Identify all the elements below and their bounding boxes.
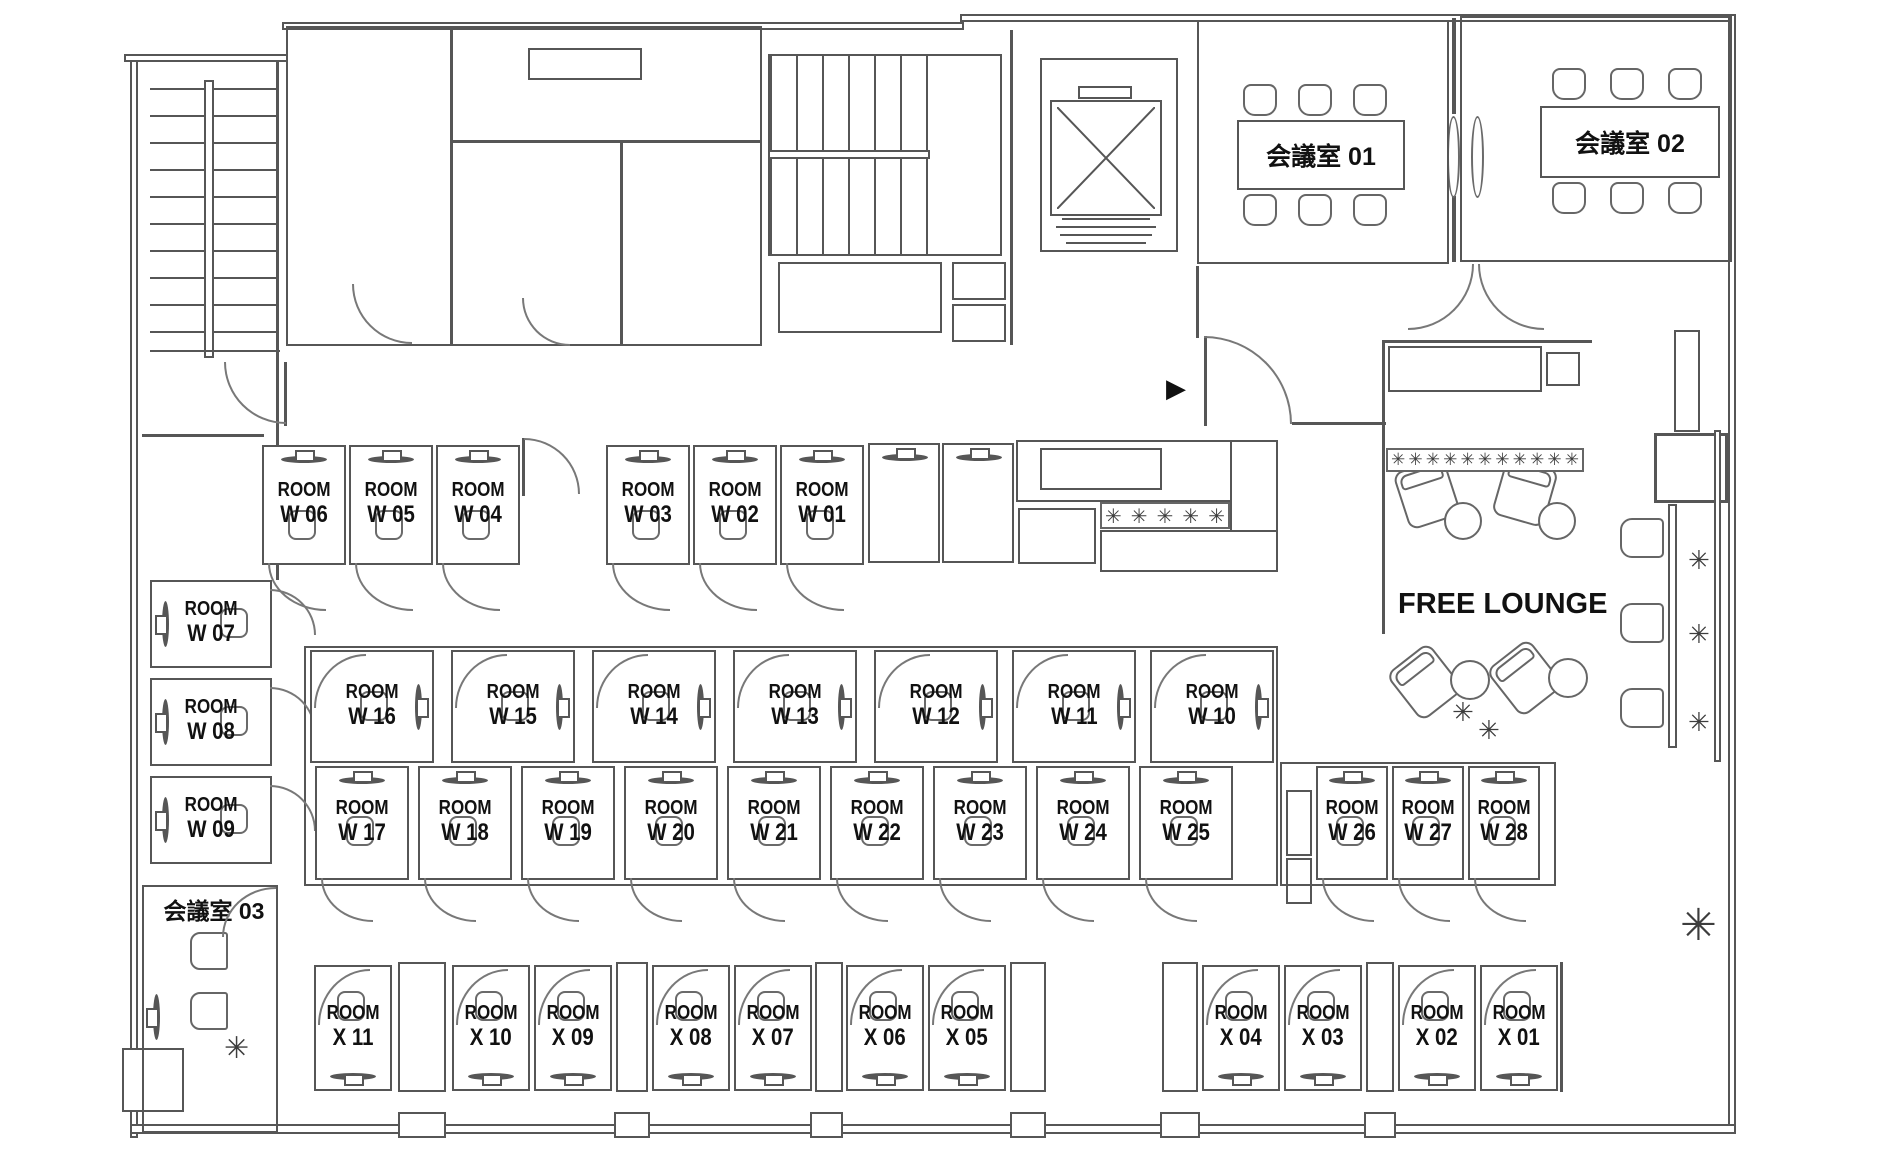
room-word: ROOM xyxy=(709,480,762,501)
door-arc-icon xyxy=(733,878,785,922)
room-w-27: ROOMW 27 xyxy=(1392,766,1464,880)
room-word: ROOM xyxy=(859,1003,912,1024)
wall xyxy=(1196,266,1199,338)
room-w-08: ROOMW 08 xyxy=(150,678,272,766)
room-w-28: ROOMW 28 xyxy=(1468,766,1540,880)
plant-icon: ✳ xyxy=(1408,452,1422,469)
plant-icon: ✳ xyxy=(1131,506,1148,526)
room-id: W 02 xyxy=(711,501,759,530)
room-word: ROOM xyxy=(439,798,492,819)
meeting-room-02-table: 会議室 02 xyxy=(1540,106,1720,178)
appliance xyxy=(1018,508,1096,564)
room-word: ROOM xyxy=(1411,1003,1464,1024)
desk-icon xyxy=(368,450,414,466)
room-word: ROOM xyxy=(185,697,238,718)
room-id: X 03 xyxy=(1302,1024,1344,1053)
room-id: W 22 xyxy=(853,819,901,848)
pillar xyxy=(810,1112,843,1138)
meeting-room-02-label: 会議室 02 xyxy=(1575,124,1685,160)
room-w-20: ROOMW 20 xyxy=(624,766,718,880)
side-table-icon xyxy=(1548,658,1588,698)
door-arc-icon xyxy=(1478,264,1544,330)
room-word: ROOM xyxy=(1402,798,1455,819)
room-word: ROOM xyxy=(185,795,238,816)
room-id: W 18 xyxy=(441,819,489,848)
desk-icon xyxy=(155,797,171,843)
desk-icon xyxy=(339,771,385,787)
room-word: ROOM xyxy=(622,480,675,501)
room-word: ROOM xyxy=(336,798,389,819)
plant-icon: ✳ xyxy=(1688,710,1710,736)
room-w-24: ROOMW 24 xyxy=(1036,766,1130,880)
plant-icon: ✳ xyxy=(1565,452,1579,469)
window-wall xyxy=(1714,430,1721,762)
room-w-10: ROOMW 10 xyxy=(1150,650,1274,763)
desk-icon xyxy=(668,1070,714,1086)
desk-icon xyxy=(1060,771,1106,787)
desk-icon xyxy=(1163,771,1209,787)
room-x-05: ROOMX 05 xyxy=(928,965,1006,1091)
side-table-icon xyxy=(1450,660,1490,700)
desk-icon xyxy=(1115,684,1131,730)
wall xyxy=(1292,422,1386,425)
door-arc-icon xyxy=(321,878,373,922)
closet xyxy=(952,262,1006,300)
room-w-21: ROOMW 21 xyxy=(727,766,821,880)
room-w-01: ROOMW 01 xyxy=(780,445,864,565)
room-id: W 20 xyxy=(647,819,695,848)
room-word: ROOM xyxy=(769,682,822,703)
room-word: ROOM xyxy=(1297,1003,1350,1024)
pillar xyxy=(614,1112,650,1138)
room-w-16: ROOMW 16 xyxy=(310,650,434,763)
room-id: W 27 xyxy=(1404,819,1452,848)
room-id: X 05 xyxy=(946,1024,988,1053)
wall xyxy=(1010,30,1013,345)
meeting-room-01-label: 会議室 01 xyxy=(1266,137,1376,173)
plant-icon: ✳ xyxy=(1391,452,1405,469)
room-word: ROOM xyxy=(1326,798,1379,819)
room-id: W 16 xyxy=(348,703,396,732)
elevator-sill xyxy=(1060,234,1152,236)
room-id: W 19 xyxy=(544,819,592,848)
door-arc-icon xyxy=(1042,878,1094,922)
desk-icon xyxy=(1481,771,1527,787)
landing xyxy=(778,262,942,333)
kitchen-counter xyxy=(1100,530,1278,572)
free-lounge-label: FREE LOUNGE xyxy=(1398,588,1602,621)
desk-icon xyxy=(944,1070,990,1086)
room-x-06: ROOMX 06 xyxy=(846,965,924,1091)
vestibule xyxy=(1366,962,1394,1092)
room-word: ROOM xyxy=(748,798,801,819)
door-arc-icon xyxy=(355,563,413,611)
room-x-09: ROOMX 09 xyxy=(534,965,612,1091)
wall xyxy=(1560,962,1563,1092)
desk-icon xyxy=(956,448,1002,464)
room-id: W 05 xyxy=(367,501,415,530)
door-arc-icon xyxy=(524,438,580,494)
room-id: X 06 xyxy=(864,1024,906,1053)
room-x-07: ROOMX 07 xyxy=(734,965,812,1091)
room-word: ROOM xyxy=(1048,682,1101,703)
room-x-04: ROOMX 04 xyxy=(1202,965,1280,1091)
desk-icon xyxy=(468,1070,514,1086)
room-word: ROOM xyxy=(185,599,238,620)
room-id: W 12 xyxy=(912,703,960,732)
room-id: W 25 xyxy=(1162,819,1210,848)
plant-icon: ✳ xyxy=(1208,506,1225,526)
room-id: W 04 xyxy=(454,501,502,530)
room-id: X 09 xyxy=(552,1024,594,1053)
desk-icon xyxy=(1405,771,1451,787)
chair-icon xyxy=(1620,688,1664,728)
vestibule xyxy=(815,962,843,1092)
door-arc-icon xyxy=(630,878,682,922)
desk-icon xyxy=(413,684,429,730)
room-word: ROOM xyxy=(796,480,849,501)
desk-icon xyxy=(455,450,501,466)
plant-icon: ✳ xyxy=(1495,452,1509,469)
desk-icon xyxy=(799,450,845,466)
pillar xyxy=(398,1112,446,1138)
desk-icon xyxy=(695,684,711,730)
room-w-12: ROOMW 12 xyxy=(874,650,998,763)
wall xyxy=(130,1124,1736,1134)
door-arc-icon xyxy=(527,878,579,922)
room-id: W 24 xyxy=(1059,819,1107,848)
plant-icon: ✳ xyxy=(1478,452,1492,469)
room-word: ROOM xyxy=(665,1003,718,1024)
room-id: X 02 xyxy=(1416,1024,1458,1053)
desk-icon xyxy=(862,1070,908,1086)
room-word: ROOM xyxy=(1478,798,1531,819)
room-w-23: ROOMW 23 xyxy=(933,766,1027,880)
room-w-11: ROOMW 11 xyxy=(1012,650,1136,763)
room-w-09: ROOMW 09 xyxy=(150,776,272,864)
room-id: W 10 xyxy=(1188,703,1236,732)
chair-icon xyxy=(1620,603,1664,643)
desk-icon xyxy=(882,448,928,464)
entrance-arrow-icon: ▶ xyxy=(1166,376,1186,402)
room-word: ROOM xyxy=(645,798,698,819)
meeting-room-01-table: 会議室 01 xyxy=(1237,120,1405,190)
room-id: W 09 xyxy=(187,816,235,845)
desk-icon xyxy=(554,684,570,730)
desk-icon xyxy=(330,1070,376,1086)
lounge-counter xyxy=(1388,346,1542,392)
room-id: W 01 xyxy=(798,501,846,530)
room-w-17: ROOMW 17 xyxy=(315,766,409,880)
room-word: ROOM xyxy=(278,480,331,501)
room-w-15: ROOMW 15 xyxy=(451,650,575,763)
elevator-sill xyxy=(1056,226,1156,228)
desk-icon xyxy=(750,1070,796,1086)
room-id: X 01 xyxy=(1498,1024,1540,1053)
plant-icon: ✳ xyxy=(1688,548,1710,574)
room-w-26: ROOMW 26 xyxy=(1316,766,1388,880)
stairs-icon xyxy=(150,88,278,350)
lounge-bar-counter xyxy=(1668,504,1677,748)
room-w-04: ROOMW 04 xyxy=(436,445,520,565)
room-id: X 07 xyxy=(752,1024,794,1053)
room-word: ROOM xyxy=(1493,1003,1546,1024)
room-word: ROOM xyxy=(365,480,418,501)
room-word: ROOM xyxy=(327,1003,380,1024)
room-id: W 13 xyxy=(771,703,819,732)
desk-icon xyxy=(281,450,327,466)
room-id: W 11 xyxy=(1051,703,1097,732)
wall xyxy=(142,434,264,437)
vestibule xyxy=(616,962,648,1092)
closet xyxy=(952,304,1006,342)
room-x-08: ROOMX 08 xyxy=(652,965,730,1091)
room-id: W 06 xyxy=(280,501,328,530)
room-word: ROOM xyxy=(941,1003,994,1024)
plant-icon: ✳ xyxy=(1105,506,1122,526)
plant-icon: ✳ xyxy=(1443,452,1457,469)
room-id: W 26 xyxy=(1328,819,1376,848)
desk-icon xyxy=(977,684,993,730)
room-x-02: ROOMX 02 xyxy=(1398,965,1476,1091)
wall xyxy=(1452,18,1456,114)
room-w-02: ROOMW 02 xyxy=(693,445,777,565)
plant-icon: ✳ xyxy=(1688,622,1710,648)
desk-icon xyxy=(146,994,162,1040)
planter-strip: ✳ ✳ ✳ ✳ ✳ xyxy=(1100,502,1230,529)
desk-icon xyxy=(957,771,1003,787)
lounge-counter xyxy=(1546,352,1580,386)
sink xyxy=(1040,448,1162,490)
room-id: W 15 xyxy=(489,703,537,732)
planter-strip: ✳ ✳ ✳ ✳ ✳ ✳ ✳ ✳ ✳ ✳ ✳ xyxy=(1386,448,1584,472)
wall xyxy=(130,54,138,1138)
stairwell-outline xyxy=(768,54,1002,256)
room-w-03: ROOMW 03 xyxy=(606,445,690,565)
room-x-10: ROOMX 10 xyxy=(452,965,530,1091)
door-arc-icon xyxy=(1322,878,1374,922)
desk-icon xyxy=(545,771,591,787)
room-word: ROOM xyxy=(1057,798,1110,819)
room-w-14: ROOMW 14 xyxy=(592,650,716,763)
room-word: ROOM xyxy=(628,682,681,703)
side-table-icon xyxy=(1538,502,1576,540)
floor-plan-canvas: 会議室 01 会議室 02 ▶ ✳ ✳ ✳ ✳ ✳ xyxy=(0,0,1890,1159)
room-word: ROOM xyxy=(747,1003,800,1024)
room-id: W 08 xyxy=(187,718,235,747)
wall xyxy=(150,350,280,352)
room-x-11: ROOMX 11 xyxy=(314,965,392,1091)
room-id: W 21 xyxy=(750,819,798,848)
wall xyxy=(1382,340,1592,343)
wall xyxy=(1452,196,1456,262)
room-id: W 17 xyxy=(338,819,386,848)
room-w-06: ROOMW 06 xyxy=(262,445,346,565)
door-arc-icon xyxy=(1474,878,1526,922)
room-id: W 23 xyxy=(956,819,1004,848)
room-word: ROOM xyxy=(1186,682,1239,703)
room-word: ROOM xyxy=(465,1003,518,1024)
room-word: ROOM xyxy=(954,798,1007,819)
room-word: ROOM xyxy=(1160,798,1213,819)
pillar xyxy=(1010,1112,1046,1138)
plant-icon: ✳ xyxy=(1530,452,1544,469)
room-word: ROOM xyxy=(487,682,540,703)
desk-icon xyxy=(751,771,797,787)
plant-icon: ✳ xyxy=(1547,452,1561,469)
room-word: ROOM xyxy=(346,682,399,703)
desk-icon xyxy=(1329,771,1375,787)
pillar xyxy=(1364,1112,1396,1138)
room-id: X 08 xyxy=(670,1024,712,1053)
plant-icon: ✳ xyxy=(1680,904,1717,948)
desk-icon xyxy=(442,771,488,787)
door-arc-icon xyxy=(939,878,991,922)
room-id: W 07 xyxy=(187,620,235,649)
chair-icon xyxy=(1620,518,1664,558)
room-id: X 04 xyxy=(1220,1024,1262,1053)
desk-icon xyxy=(550,1070,596,1086)
wall xyxy=(124,54,288,62)
room-id: W 03 xyxy=(624,501,672,530)
plant-icon: ✳ xyxy=(1157,506,1174,526)
room-id: W 14 xyxy=(630,703,678,732)
elevator-sill xyxy=(1062,218,1150,220)
room-id: X 11 xyxy=(333,1024,374,1053)
door-arc-icon xyxy=(442,563,500,611)
room-w-18: ROOMW 18 xyxy=(418,766,512,880)
room-x-03: ROOMX 03 xyxy=(1284,965,1362,1091)
desk-icon xyxy=(1300,1070,1346,1086)
door-arc-icon xyxy=(836,878,888,922)
room-w-13: ROOMW 13 xyxy=(733,650,857,763)
desk-icon xyxy=(1253,684,1269,730)
entrance-door-arc-icon xyxy=(1204,336,1292,424)
door-arc-icon xyxy=(1408,264,1474,330)
desk-icon xyxy=(854,771,900,787)
elevator-sill xyxy=(1066,242,1146,244)
room-w-07: ROOMW 07 xyxy=(150,580,272,668)
plant-icon: ✳ xyxy=(1182,506,1199,526)
desk-icon xyxy=(625,450,671,466)
door-arc-icon xyxy=(1398,878,1450,922)
door-arc-icon xyxy=(786,563,844,611)
plant-icon: ✳ xyxy=(1478,718,1500,744)
desk-icon xyxy=(1218,1070,1264,1086)
vestibule xyxy=(1162,962,1198,1092)
room-word: ROOM xyxy=(1215,1003,1268,1024)
desk-icon xyxy=(1496,1070,1542,1086)
desk-icon xyxy=(155,699,171,745)
room-w-22: ROOMW 22 xyxy=(830,766,924,880)
door-arc-icon xyxy=(224,362,286,424)
plant-icon: ✳ xyxy=(1461,452,1475,469)
elevator-panel xyxy=(1078,86,1132,99)
door-arc-icon xyxy=(424,878,476,922)
plant-icon: ✳ xyxy=(1426,452,1440,469)
plant-icon: ✳ xyxy=(1452,700,1474,726)
side-table-icon xyxy=(1444,502,1482,540)
wall xyxy=(1382,340,1385,634)
vestibule xyxy=(1010,962,1046,1092)
desk-icon xyxy=(712,450,758,466)
stair-rail xyxy=(204,80,214,358)
door-arc-icon xyxy=(1145,878,1197,922)
room-word: ROOM xyxy=(910,682,963,703)
desk-icon xyxy=(648,771,694,787)
room-id: W 28 xyxy=(1480,819,1528,848)
pillar xyxy=(1160,1112,1200,1138)
room-id: X 10 xyxy=(470,1024,512,1053)
room-w-05: ROOMW 05 xyxy=(349,445,433,565)
room-x-01: ROOMX 01 xyxy=(1480,965,1558,1091)
room-w-25: ROOMW 25 xyxy=(1139,766,1233,880)
vestibule xyxy=(398,962,446,1092)
desk-icon xyxy=(155,601,171,647)
door-arc-icon xyxy=(612,563,670,611)
plant-icon: ✳ xyxy=(224,1034,249,1064)
plant-icon: ✳ xyxy=(1513,452,1527,469)
room-word: ROOM xyxy=(542,798,595,819)
door-arc-icon xyxy=(699,563,757,611)
desk-icon xyxy=(1414,1070,1460,1086)
room-word: ROOM xyxy=(547,1003,600,1024)
lounge-shelf xyxy=(1674,330,1700,432)
room-w-19: ROOMW 19 xyxy=(521,766,615,880)
room-word: ROOM xyxy=(452,480,505,501)
desk-icon xyxy=(836,684,852,730)
elevator-x-icon xyxy=(1057,107,1155,209)
room-word: ROOM xyxy=(851,798,904,819)
